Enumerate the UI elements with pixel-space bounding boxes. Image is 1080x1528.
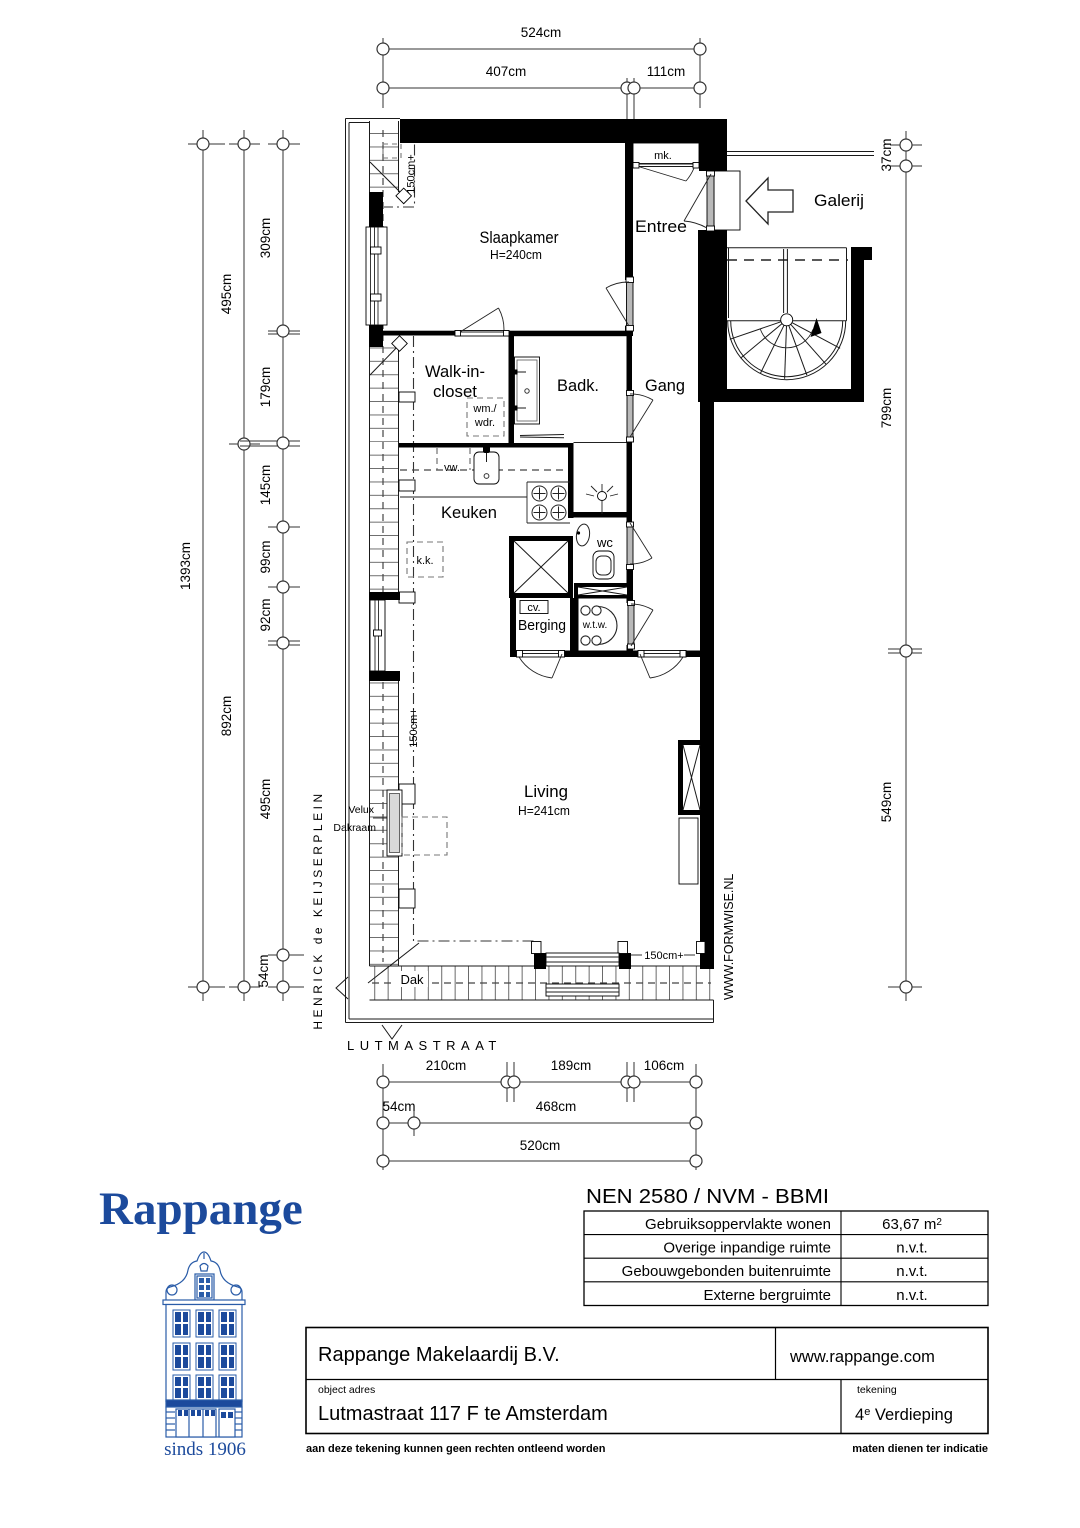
svg-text:150cm+: 150cm+ — [406, 154, 418, 193]
svg-text:Gang: Gang — [645, 376, 685, 395]
svg-text:Galerij: Galerij — [814, 191, 864, 210]
svg-text:Dak: Dak — [400, 972, 424, 987]
svg-text:495cm: 495cm — [219, 274, 234, 315]
svg-text:495cm: 495cm — [258, 779, 273, 820]
svg-text:1393cm: 1393cm — [178, 542, 193, 590]
svg-text:cv.: cv. — [527, 602, 540, 614]
svg-text:w.t.w.: w.t.w. — [582, 620, 607, 631]
svg-text:NEN 2580 / NVM - BBMI: NEN 2580 / NVM - BBMI — [586, 1186, 829, 1208]
svg-text:Berging: Berging — [518, 618, 566, 634]
svg-text:407cm: 407cm — [486, 64, 527, 79]
svg-text:4e Verdieping: 4e Verdieping — [855, 1406, 953, 1424]
svg-text:106cm: 106cm — [644, 1058, 685, 1073]
svg-text:37cm: 37cm — [879, 138, 894, 171]
svg-text:309cm: 309cm — [258, 218, 273, 259]
svg-text:n.v.t.: n.v.t. — [896, 1287, 927, 1304]
svg-text:Keuken: Keuken — [441, 503, 497, 522]
svg-text:549cm: 549cm — [879, 782, 894, 823]
svg-text:Gebouwgebonden buitenruimte: Gebouwgebonden buitenruimte — [622, 1263, 831, 1280]
svg-text:wm./: wm./ — [472, 403, 497, 415]
svg-text:145cm: 145cm — [258, 465, 273, 506]
svg-text:n.v.t.: n.v.t. — [896, 1240, 927, 1257]
svg-text:Lutmastraat 117 F te Amsterdam: Lutmastraat 117 F te Amsterdam — [318, 1403, 608, 1425]
svg-text:99cm: 99cm — [258, 540, 273, 573]
svg-text:H=240cm: H=240cm — [490, 248, 542, 262]
svg-text:Slaapkamer: Slaapkamer — [480, 228, 559, 247]
svg-text:Rappange: Rappange — [99, 1183, 303, 1235]
svg-text:150cm+: 150cm+ — [644, 950, 683, 962]
svg-text:Walk-in-: Walk-in- — [425, 362, 485, 381]
svg-text:HENRICK de KEIJSERPLEIN: HENRICK de KEIJSERPLEIN — [311, 790, 325, 1029]
svg-text:sinds 1906: sinds 1906 — [164, 1439, 246, 1460]
svg-text:aan deze tekening kunnen geen: aan deze tekening kunnen geen rechten on… — [306, 1443, 606, 1455]
svg-text:54cm: 54cm — [382, 1099, 415, 1114]
svg-text:H=241cm: H=241cm — [518, 804, 570, 818]
svg-text:111cm: 111cm — [647, 64, 686, 79]
svg-text:189cm: 189cm — [551, 1058, 592, 1073]
svg-text:k.k.: k.k. — [416, 555, 433, 567]
svg-text:Dakraam: Dakraam — [333, 822, 376, 834]
svg-text:Velux: Velux — [348, 804, 374, 816]
svg-text:524cm: 524cm — [521, 25, 562, 40]
svg-text:closet: closet — [433, 382, 477, 401]
svg-text:799cm: 799cm — [879, 388, 894, 429]
svg-text:179cm: 179cm — [258, 367, 273, 408]
svg-text:468cm: 468cm — [536, 1099, 577, 1114]
svg-text:wdr.: wdr. — [474, 417, 495, 429]
svg-text:54cm: 54cm — [256, 954, 271, 987]
svg-text:92cm: 92cm — [258, 598, 273, 631]
svg-text:www.rappange.com: www.rappange.com — [789, 1348, 935, 1366]
svg-text:Rappange Makelaardij B.V.: Rappange Makelaardij B.V. — [318, 1344, 560, 1366]
svg-text:Externe bergruimte: Externe bergruimte — [703, 1287, 831, 1304]
svg-text:210cm: 210cm — [426, 1058, 467, 1073]
svg-text:object adres: object adres — [318, 1384, 375, 1396]
svg-text:520cm: 520cm — [520, 1138, 561, 1153]
svg-text:mk.: mk. — [654, 150, 672, 162]
svg-text:Badk.: Badk. — [557, 376, 599, 395]
svg-text:tekening: tekening — [857, 1384, 897, 1396]
svg-text:WWW.FORMWISE.NL: WWW.FORMWISE.NL — [722, 874, 736, 1000]
svg-text:vw.: vw. — [444, 462, 460, 474]
svg-text:150cm+: 150cm+ — [408, 708, 420, 747]
svg-text:wc: wc — [596, 535, 613, 550]
svg-text:63,67 m2: 63,67 m2 — [882, 1216, 942, 1233]
svg-text:892cm: 892cm — [219, 696, 234, 737]
svg-text:n.v.t.: n.v.t. — [896, 1263, 927, 1280]
svg-text:LUTMASTRAAT: LUTMASTRAAT — [347, 1038, 502, 1053]
svg-text:maten dienen ter indicatie: maten dienen ter indicatie — [852, 1443, 988, 1455]
svg-text:Gebruiksoppervlakte wonen: Gebruiksoppervlakte wonen — [645, 1216, 831, 1233]
svg-text:Overige inpandige ruimte: Overige inpandige ruimte — [663, 1240, 831, 1257]
svg-text:Entree: Entree — [635, 217, 687, 236]
svg-text:Living: Living — [524, 782, 568, 801]
